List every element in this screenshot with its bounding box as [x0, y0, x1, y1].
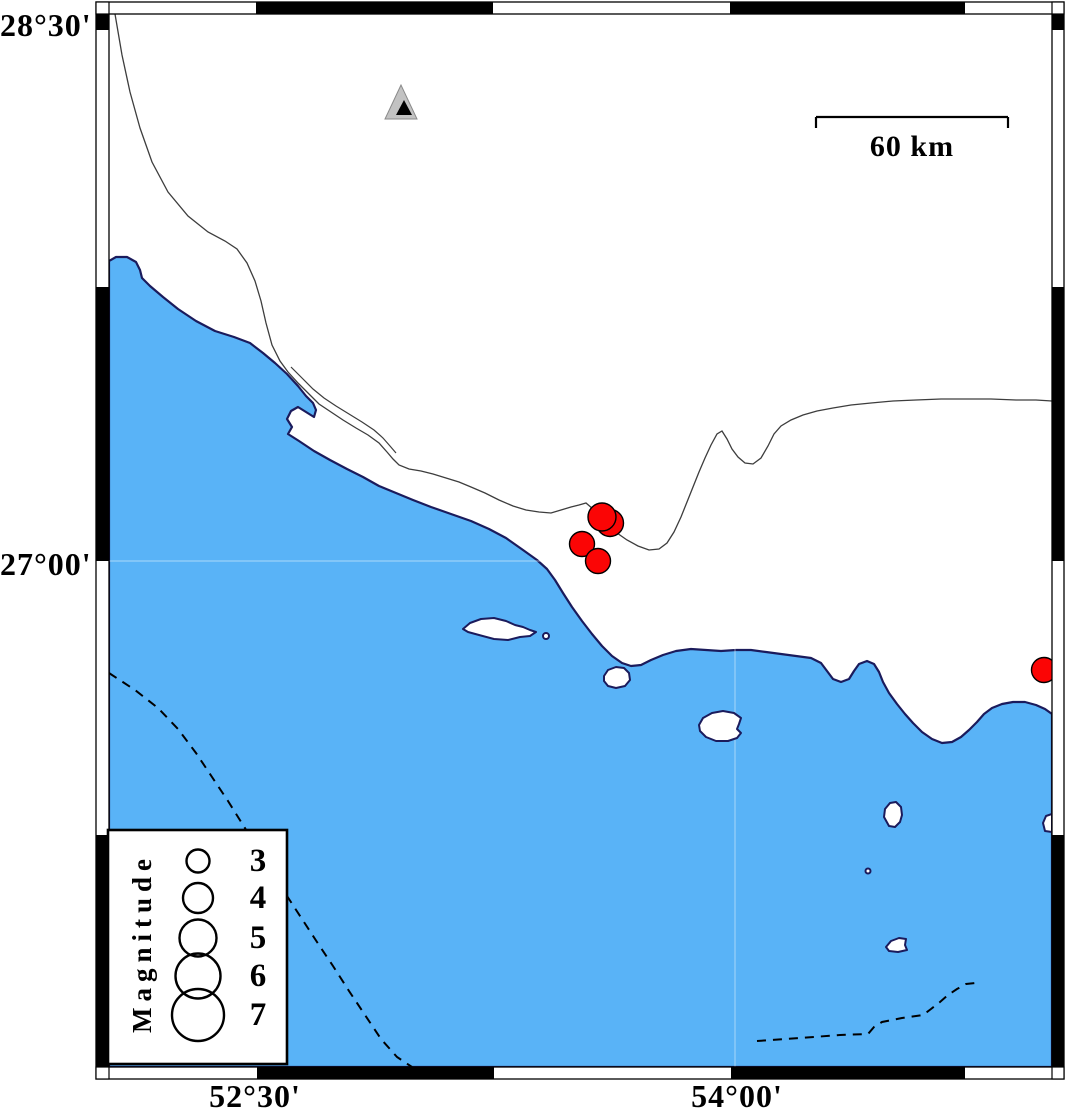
island [543, 633, 549, 639]
frame-black-segment [96, 14, 109, 30]
legend-magnitude-label: 6 [230, 957, 286, 995]
legend-magnitude-label: 7 [230, 996, 286, 1034]
frame-black-segment [1052, 14, 1064, 30]
island [866, 869, 871, 874]
island [884, 802, 902, 827]
frame-black-segment [730, 2, 965, 14]
frame-black-segment [96, 287, 109, 561]
island [604, 667, 630, 688]
legend-magnitude-label: 4 [230, 879, 286, 917]
frame-corner-square [1052, 2, 1064, 14]
lat-label-2700: 27°00' [0, 544, 88, 584]
frame-corner-square [1052, 1067, 1064, 1079]
scale-bar [816, 117, 1008, 128]
legend-magnitude-label: 3 [230, 842, 286, 880]
frame-black-segment [256, 2, 493, 14]
lon-label-5230: 52°30' [155, 1077, 355, 1115]
earthquake-marker [586, 549, 611, 574]
legend-title: Magnitude [125, 813, 159, 1073]
earthquake-marker [588, 503, 616, 531]
lon-label-5400: 54°00' [637, 1077, 837, 1115]
frame-corner-square [96, 1067, 109, 1079]
frame-black-segment [1052, 835, 1064, 1067]
frame-corner-square [96, 2, 109, 14]
frame-black-segment [1052, 287, 1064, 561]
lat-label-2830: 28°30' [0, 5, 88, 45]
map-figure: 28°30' 27°00' 52°30' 54°00' 60 km Magnit… [0, 0, 1066, 1115]
map-svg [0, 0, 1066, 1115]
scale-bar-label: 60 km [812, 130, 1012, 164]
earthquake-marker [1032, 658, 1057, 683]
legend-magnitude-label: 5 [230, 919, 286, 957]
